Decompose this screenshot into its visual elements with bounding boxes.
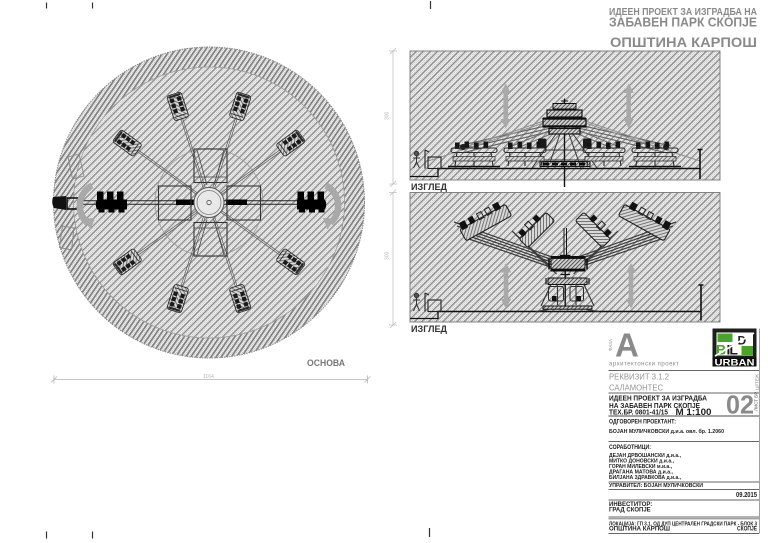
svg-text:СКОПЈЕ: СКОПЈЕ [737, 526, 757, 533]
svg-text:СОРАБОТНИЦИ:: СОРАБОТНИЦИ: [609, 445, 651, 451]
svg-text:ИЗГЛЕД: ИЗГЛЕД [411, 182, 448, 192]
svg-text:ОДГОВОРЕН ПРОЕКТАНТ:: ОДГОВОРЕН ПРОЕКТАНТ: [609, 420, 676, 426]
svg-text:ФАЗА: ФАЗА [608, 339, 613, 351]
svg-text:1164: 1164 [203, 374, 214, 380]
svg-text:БОЈАН МУЛИЧКОВСКИ д.и.а. овл: БОЈАН МУЛИЧКОВСКИ д.и.а. овл. бр. 1.2060 [609, 428, 724, 435]
svg-text:ЛИСТ БР.: ЛИСТ БР. [754, 391, 759, 411]
svg-text:02: 02 [726, 390, 754, 420]
svg-text:архитектонски проект: архитектонски проект [609, 362, 679, 368]
svg-text:ЗАБАВЕН ПАРК СКОПЈЕ: ЗАБАВЕН ПАРК СКОПЈЕ [609, 16, 757, 30]
svg-text:ОСНОВА: ОСНОВА [307, 358, 345, 368]
svg-text:УПРАВИТЕЛ: БОЈАН МУЛИЧКОВСКИ: УПРАВИТЕЛ: БОЈАН МУЛИЧКОВСКИ [609, 483, 703, 489]
svg-text:РЕКВИЗИТ 3.1.2: РЕКВИЗИТ 3.1.2 [609, 373, 670, 382]
svg-text:ЦРТЕЖ: ЦРТЕЖ [755, 373, 760, 390]
svg-text:ОПШТИНА КАРПОШ: ОПШТИНА КАРПОШ [610, 35, 757, 50]
svg-text:300: 300 [385, 111, 391, 120]
svg-text:БИЛЈАНА ЗДРАВКОВА д.и.а.,: БИЛЈАНА ЗДРАВКОВА д.и.а., [609, 475, 681, 481]
svg-text:ИЗГЛЕД: ИЗГЛЕД [411, 324, 448, 334]
svg-text:ГРАД СКОПЈЕ: ГРАД СКОПЈЕ [609, 508, 651, 514]
svg-text:САЛАМОНТЕС: САЛАМОНТЕС [609, 384, 663, 393]
svg-text:300: 300 [385, 251, 391, 260]
svg-text:ОПШТИНА КАРПОШ: ОПШТИНА КАРПОШ [609, 526, 670, 533]
svg-text:URBAN: URBAN [715, 358, 755, 368]
svg-text:A: A [615, 327, 639, 364]
svg-text:09.2015: 09.2015 [736, 490, 757, 499]
